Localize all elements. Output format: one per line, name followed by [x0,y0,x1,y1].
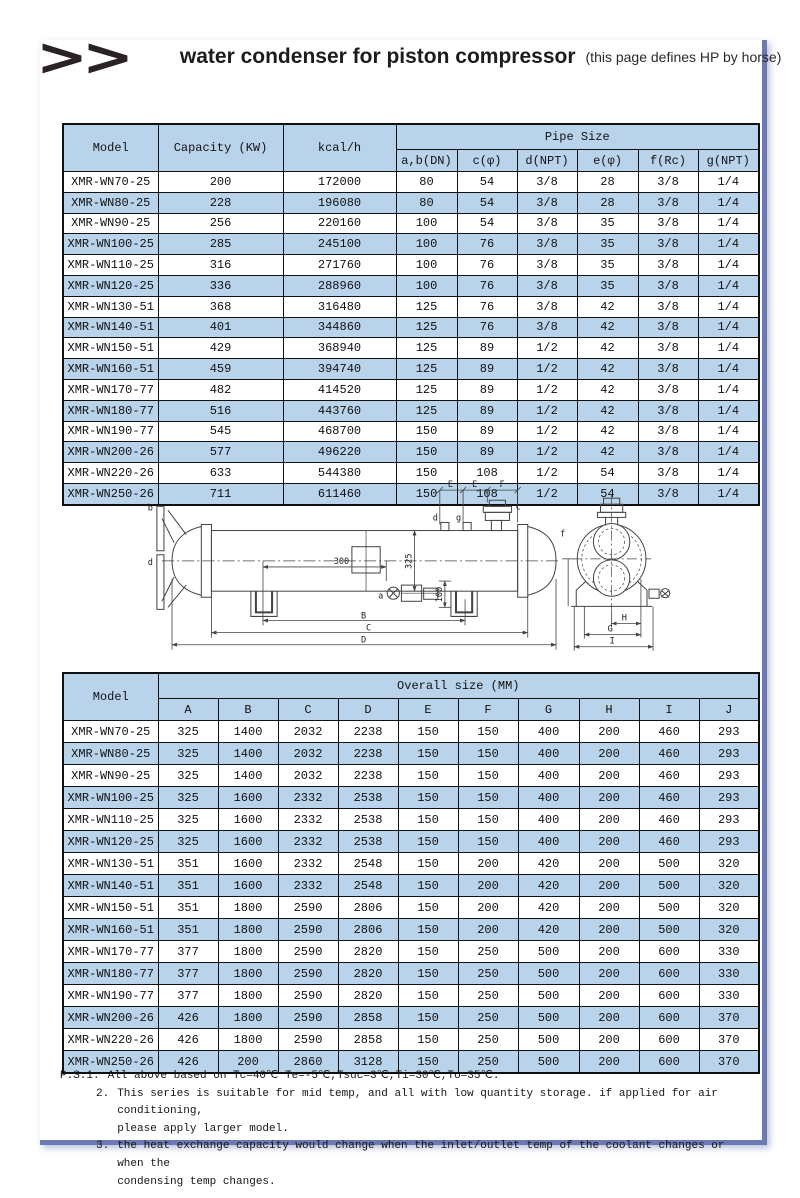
value-cell: 42 [577,442,638,463]
table-row: XMR-WN180-77516443760125891/2423/81/4 [63,400,759,421]
value-cell: 200 [579,1007,639,1029]
value-cell: 3/8 [638,172,698,193]
value-cell: 325 [158,831,218,853]
table-row: XMR-WN100-253251600233225381501504002004… [63,787,759,809]
value-cell: 2590 [278,985,338,1007]
value-cell: 2590 [278,941,338,963]
value-cell: 420 [518,875,579,897]
value-cell: 320 [699,853,759,875]
model-cell: XMR-WN90-25 [63,765,158,787]
value-cell: 320 [699,875,759,897]
nozzle-label-d-top: d [433,513,438,523]
note-1: P.S:1. All above based on Tc=40℃ Te=-5℃,… [60,1068,750,1086]
model-cell: XMR-WN140-51 [63,317,158,338]
value-cell: 89 [457,379,517,400]
value-cell: 377 [158,963,218,985]
value-cell: 600 [639,941,699,963]
gauge-assembly [483,500,511,530]
value-cell: 2032 [278,721,338,743]
value-cell: 200 [579,787,639,809]
value-cell: 293 [699,743,759,765]
value-cell: 420 [518,919,579,941]
value-cell: 2858 [338,1007,398,1029]
value-cell: 2820 [338,963,398,985]
nozzle-label-g: g [456,513,461,523]
group-header-pipe-size: Pipe Size [396,124,759,150]
table-row: XMR-WN70-2532514002032223815015040020046… [63,721,759,743]
value-cell: 443760 [283,400,396,421]
value-cell: 42 [577,400,638,421]
value-cell: 460 [639,787,699,809]
value-cell: 150 [458,765,518,787]
value-cell: 293 [699,787,759,809]
dim-label-D: D [361,636,366,646]
value-cell: 150 [398,787,458,809]
value-cell: 1800 [218,941,278,963]
value-cell: 2548 [338,875,398,897]
value-cell: 1800 [218,963,278,985]
value-cell: 325 [158,721,218,743]
value-cell: 400 [518,743,579,765]
value-cell: 325 [158,743,218,765]
value-cell: 1/4 [698,379,759,400]
value-cell: 351 [158,853,218,875]
dim-label-H: H [622,613,627,623]
value-cell: 1800 [218,985,278,1007]
value-cell: 150 [398,831,458,853]
value-cell: 54 [457,213,517,234]
value-cell: 460 [639,721,699,743]
value-cell: 150 [398,1029,458,1051]
value-cell: 200 [579,875,639,897]
value-cell: 2820 [338,985,398,1007]
value-cell: 3/8 [638,275,698,296]
note-2-line-1: This series is suitable for mid temp, an… [117,1088,718,1118]
page-title: water condenser for piston compressor [180,45,576,69]
value-cell: 429 [158,338,283,359]
dim-label-G: G [608,625,613,635]
table-row: XMR-WN90-25256220160100543/8353/81/4 [63,213,759,234]
nozzle-label-d-left: d [148,558,153,568]
model-cell: XMR-WN140-51 [63,875,158,897]
table-row: XMR-WN120-25336288960100763/8353/81/4 [63,275,759,296]
value-cell: 2332 [278,875,338,897]
value-cell: 3/8 [638,400,698,421]
value-cell: 545 [158,421,283,442]
value-cell: 1/2 [517,359,577,380]
value-cell: 414520 [283,379,396,400]
value-cell: 42 [577,379,638,400]
chevrons-logo-icon: >> [36,31,128,84]
top-nozzles [441,522,471,530]
value-cell: 200 [458,919,518,941]
value-cell: 200 [158,172,283,193]
value-cell: 200 [579,765,639,787]
model-cell: XMR-WN220-26 [63,1029,158,1051]
value-cell: 1800 [218,897,278,919]
value-cell: 400 [518,831,579,853]
value-cell: 1/4 [698,338,759,359]
overall-size-table: Model Overall size (MM) A B C D E F G H … [62,672,760,1074]
col-header-g-npt: g(NPT) [698,150,759,172]
value-cell: 2590 [278,1029,338,1051]
table-row: XMR-WN200-264261800259028581502505002006… [63,1007,759,1029]
value-cell: 80 [396,192,457,213]
table-row: XMR-WN180-773771800259028201502505002006… [63,963,759,985]
table-row: XMR-WN90-2532514002032223815015040020046… [63,765,759,787]
model-cell: XMR-WN80-25 [63,192,158,213]
value-cell: 2538 [338,831,398,853]
value-cell: 420 [518,897,579,919]
value-cell: 200 [579,1029,639,1051]
value-cell: 500 [518,1029,579,1051]
table-row: XMR-WN140-51401344860125763/8423/81/4 [63,317,759,338]
value-cell: 42 [577,317,638,338]
condenser-diagram-svg: E E F b d d g c f 300 325 100 a B C D H … [142,478,772,670]
value-cell: 125 [396,296,457,317]
table-row: XMR-WN130-51368316480125763/8423/81/4 [63,296,759,317]
model-cell: XMR-WN100-25 [63,234,158,255]
page-header: >> water condenser for piston compressor… [36,26,781,88]
table-row: XMR-WN130-513511600233225481502004202005… [63,853,759,875]
table-row: XMR-WN70-2520017200080543/8283/81/4 [63,172,759,193]
note-3-line-1: the heat exchange capacity would change … [117,1140,724,1170]
value-cell: 460 [639,831,699,853]
value-cell: 54 [457,172,517,193]
value-cell: 200 [579,919,639,941]
value-cell: 1600 [218,831,278,853]
table-row: XMR-WN160-513511800259028061502004202005… [63,919,759,941]
value-cell: 2806 [338,897,398,919]
value-cell: 3/8 [517,172,577,193]
table-row: XMR-WN140-513511600233225481502004202005… [63,875,759,897]
value-cell: 1400 [218,765,278,787]
value-cell: 150 [458,787,518,809]
value-cell: 150 [398,919,458,941]
value-cell: 600 [639,985,699,1007]
value-cell: 351 [158,919,218,941]
note-3-text: the heat exchange capacity would change … [117,1138,750,1191]
value-cell: 351 [158,875,218,897]
value-cell: 401 [158,317,283,338]
nozzle-label-b: b [148,503,153,513]
value-cell: 1/2 [517,338,577,359]
dim-label-I: I [610,637,615,647]
value-cell: 76 [457,317,517,338]
value-cell: 2332 [278,787,338,809]
value-cell: 200 [579,941,639,963]
value-cell: 200 [458,875,518,897]
value-cell: 325 [158,787,218,809]
table-row: XMR-WN80-2532514002032223815015040020046… [63,743,759,765]
model-cell: XMR-WN130-51 [63,296,158,317]
value-cell: 351 [158,897,218,919]
table-row: XMR-WN80-2522819608080543/8283/81/4 [63,192,759,213]
value-cell: 150 [458,721,518,743]
value-cell: 76 [457,234,517,255]
value-cell: 200 [579,721,639,743]
col-header-D: D [338,699,398,721]
value-cell: 1/4 [698,213,759,234]
value-cell: 377 [158,941,218,963]
value-cell: 336 [158,275,283,296]
col-header-d-npt: d(NPT) [517,150,577,172]
value-cell: 468700 [283,421,396,442]
value-cell: 426 [158,1007,218,1029]
value-cell: 2820 [338,941,398,963]
value-cell: 1400 [218,721,278,743]
value-cell: 344860 [283,317,396,338]
value-cell: 35 [577,213,638,234]
value-cell: 150 [398,985,458,1007]
value-cell: 293 [699,765,759,787]
value-cell: 2858 [338,1029,398,1051]
value-cell: 89 [457,338,517,359]
model-cell: XMR-WN170-77 [63,379,158,400]
value-cell: 400 [518,765,579,787]
value-cell: 500 [639,919,699,941]
value-cell: 28 [577,192,638,213]
value-cell: 325 [158,765,218,787]
value-cell: 76 [457,275,517,296]
value-cell: 3/8 [638,338,698,359]
col-header-J: J [699,699,759,721]
value-cell: 3/8 [517,234,577,255]
value-cell: 288960 [283,275,396,296]
value-cell: 150 [458,831,518,853]
value-cell: 1800 [218,919,278,941]
model-cell: XMR-WN130-51 [63,853,158,875]
value-cell: 125 [396,379,457,400]
value-cell: 316 [158,255,283,276]
col-header-model: Model [63,124,158,172]
value-cell: 1800 [218,1029,278,1051]
value-cell: 256 [158,213,283,234]
value-cell: 150 [396,421,457,442]
value-cell: 35 [577,234,638,255]
value-cell: 80 [396,172,457,193]
model-cell: XMR-WN170-77 [63,941,158,963]
col-header-ab-dn: a,b(DN) [396,150,457,172]
model-cell: XMR-WN150-51 [63,897,158,919]
value-cell: 100 [396,255,457,276]
value-cell: 1/2 [517,400,577,421]
end-view [562,494,670,611]
value-cell: 250 [458,1007,518,1029]
value-cell: 316480 [283,296,396,317]
value-cell: 28 [577,172,638,193]
value-cell: 1/4 [698,234,759,255]
value-cell: 200 [579,897,639,919]
value-cell: 325 [158,809,218,831]
model-cell: XMR-WN160-51 [63,919,158,941]
value-cell: 3/8 [638,213,698,234]
value-cell: 1/4 [698,192,759,213]
condenser-drawing: E E F b d d g c f 300 325 100 a B C D H … [142,478,772,670]
value-cell: 100 [396,213,457,234]
value-cell: 3/8 [638,192,698,213]
value-cell: 330 [699,985,759,1007]
value-cell: 394740 [283,359,396,380]
value-cell: 3/8 [517,296,577,317]
value-cell: 42 [577,421,638,442]
dim-label-B: B [361,611,366,621]
valve-label-a: a [378,591,383,601]
value-cell: 2238 [338,721,398,743]
value-cell: 1/4 [698,400,759,421]
value-cell: 3/8 [638,255,698,276]
value-cell: 89 [457,400,517,421]
value-cell: 125 [396,400,457,421]
model-cell: XMR-WN110-25 [63,809,158,831]
note-1-text: All above based on Tc=40℃ Te=-5℃,Tsuc=3℃… [108,1068,500,1086]
value-cell: 1/2 [517,442,577,463]
dim-label-C: C [366,624,371,634]
col-header-A: A [158,699,218,721]
left-pipes [157,506,186,609]
model-cell: XMR-WN200-26 [63,442,158,463]
value-cell: 496220 [283,442,396,463]
value-cell: 200 [579,831,639,853]
pipe-size-table: Model Capacity (KW) kcal/h Pipe Size a,b… [62,123,760,506]
value-cell: 368940 [283,338,396,359]
value-cell: 42 [577,296,638,317]
model-cell: XMR-WN120-25 [63,831,158,853]
value-cell: 400 [518,721,579,743]
value-cell: 600 [639,963,699,985]
value-cell: 250 [458,985,518,1007]
value-cell: 250 [458,941,518,963]
note-2: 2. This series is suitable for mid temp,… [60,1086,750,1139]
value-cell: 150 [398,897,458,919]
model-cell: XMR-WN100-25 [63,787,158,809]
value-cell: 76 [457,255,517,276]
value-cell: 320 [699,897,759,919]
footnotes: P.S:1. All above based on Tc=40℃ Te=-5℃,… [60,1068,750,1191]
value-cell: 125 [396,338,457,359]
value-cell: 35 [577,255,638,276]
value-cell: 200 [579,853,639,875]
value-cell: 500 [639,875,699,897]
drain-valve [387,585,438,601]
overall-size-table-header: Model Overall size (MM) A B C D E F G H … [63,673,759,721]
value-cell: 100 [396,275,457,296]
col-header-C: C [278,699,338,721]
value-cell: 1600 [218,809,278,831]
value-cell: 600 [639,1007,699,1029]
col-header-kcal: kcal/h [283,124,396,172]
model-cell: XMR-WN90-25 [63,213,158,234]
value-cell: 100 [396,234,457,255]
value-cell: 35 [577,275,638,296]
value-cell: 89 [457,421,517,442]
value-cell: 2332 [278,809,338,831]
value-cell: 1/4 [698,317,759,338]
note-3-line-2: condensing temp changes. [117,1176,275,1188]
value-cell: 89 [457,442,517,463]
dim-300 [263,561,386,581]
value-cell: 2238 [338,743,398,765]
pipe-size-table-header: Model Capacity (KW) kcal/h Pipe Size a,b… [63,124,759,172]
value-cell: 1/4 [698,172,759,193]
value-cell: 2590 [278,963,338,985]
value-cell: 3/8 [517,255,577,276]
value-cell: 3/8 [517,213,577,234]
value-cell: 2548 [338,853,398,875]
value-cell: 1/4 [698,296,759,317]
value-cell: 500 [518,985,579,1007]
value-cell: 2538 [338,809,398,831]
value-cell: 285 [158,234,283,255]
value-cell: 150 [398,809,458,831]
value-cell: 150 [398,743,458,765]
value-cell: 76 [457,296,517,317]
dim-label-e1: E [448,480,453,490]
model-cell: XMR-WN180-77 [63,963,158,985]
dim-top [437,487,521,524]
value-cell: 400 [518,809,579,831]
col-header-B: B [218,699,278,721]
value-cell: 150 [398,1007,458,1029]
value-cell: 172000 [283,172,396,193]
value-cell: 482 [158,379,283,400]
table-row: XMR-WN170-77482414520125891/2423/81/4 [63,379,759,400]
value-cell: 2032 [278,743,338,765]
value-cell: 150 [398,963,458,985]
col-header-model2: Model [63,673,158,721]
note-1-number: P.S:1. [60,1068,100,1086]
value-cell: 200 [579,963,639,985]
value-cell: 250 [458,963,518,985]
value-cell: 150 [458,809,518,831]
value-cell: 3/8 [517,275,577,296]
value-cell: 200 [579,743,639,765]
value-cell: 377 [158,985,218,1007]
value-cell: 426 [158,1029,218,1051]
value-cell: 2238 [338,765,398,787]
value-cell: 1600 [218,787,278,809]
model-cell: XMR-WN110-25 [63,255,158,276]
table-row: XMR-WN170-773771800259028201502505002006… [63,941,759,963]
table-row: XMR-WN190-77545468700150891/2423/81/4 [63,421,759,442]
value-cell: 2590 [278,919,338,941]
table-row: XMR-WN110-25316271760100763/8353/81/4 [63,255,759,276]
value-cell: 200 [458,897,518,919]
model-cell: XMR-WN200-26 [63,1007,158,1029]
value-cell: 459 [158,359,283,380]
table-row: XMR-WN150-51429368940125891/2423/81/4 [63,338,759,359]
nozzle-label-c: c [516,502,521,512]
table-row: XMR-WN220-264261800259028581502505002006… [63,1029,759,1051]
value-cell: 200 [579,985,639,1007]
value-cell: 1400 [218,743,278,765]
value-cell: 150 [396,442,457,463]
col-header-e-phi: e(φ) [577,150,638,172]
model-cell: XMR-WN150-51 [63,338,158,359]
value-cell: 293 [699,831,759,853]
value-cell: 3/8 [638,359,698,380]
value-cell: 3/8 [638,296,698,317]
col-header-f-rc: f(Rc) [638,150,698,172]
dim-label-e2: E [472,480,477,490]
model-cell: XMR-WN80-25 [63,743,158,765]
value-cell: 150 [398,941,458,963]
value-cell: 293 [699,721,759,743]
value-cell: 245100 [283,234,396,255]
table-row: XMR-WN110-253251600233225381501504002004… [63,809,759,831]
value-cell: 2590 [278,1007,338,1029]
note-3-number: 3. [96,1138,109,1191]
